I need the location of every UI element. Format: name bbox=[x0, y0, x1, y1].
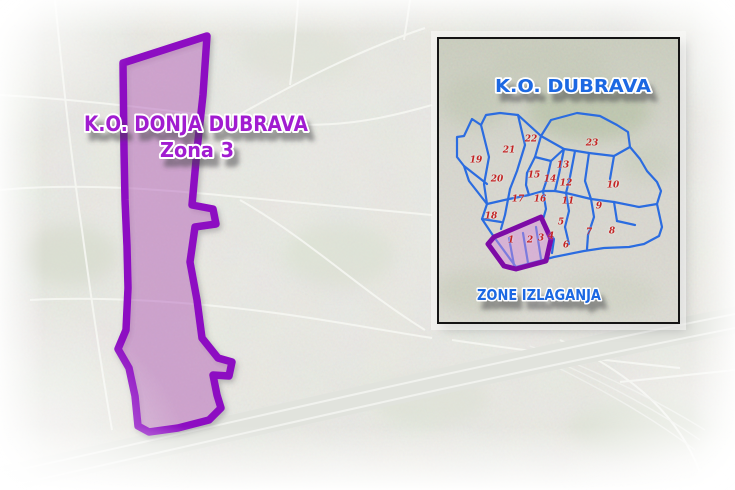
inset-footer-label: ZONE IZLAGANJA bbox=[477, 286, 601, 304]
inset-zone-network: K.O. DUBRAVA ZONE IZLAGANJA bbox=[439, 39, 678, 322]
inset-title: K.O. DUBRAVA bbox=[495, 76, 651, 97]
highlighted-zone-polygon bbox=[488, 217, 551, 269]
main-map-title: K.O. DONJA DUBRAVA bbox=[84, 112, 309, 136]
main-zone-polygon bbox=[118, 36, 232, 432]
map-canvas: K.O. DONJA DUBRAVA Zona 3 bbox=[0, 0, 735, 490]
inset-map: K.O. DUBRAVA ZONE IZLAGANJA 123456789101… bbox=[437, 37, 680, 324]
main-map-subtitle: Zona 3 bbox=[160, 138, 234, 162]
